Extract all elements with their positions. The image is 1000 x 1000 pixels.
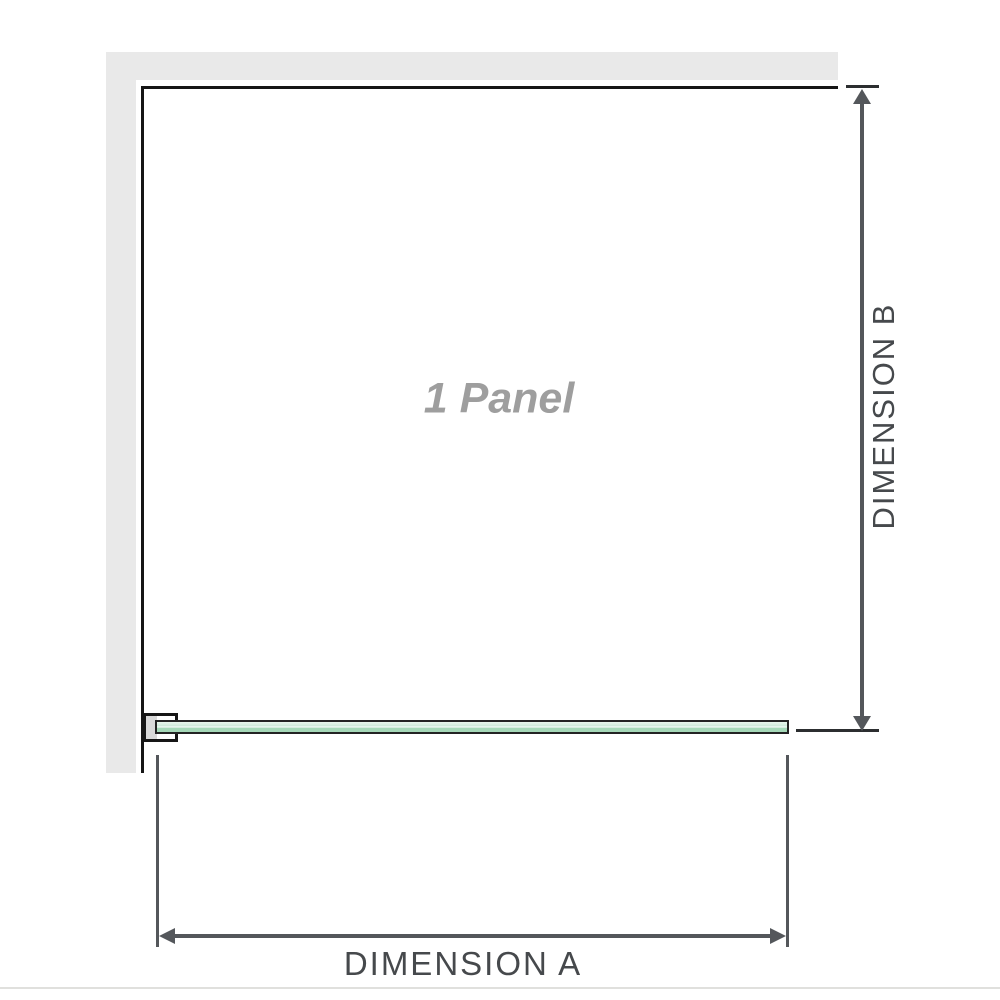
glass-panel [155,720,789,734]
wall-edge-left-line [141,86,144,773]
dimension-a-extension-right [786,755,789,947]
panel-count-label: 1 Panel [424,375,575,424]
wall-top [106,52,838,80]
panel-diagram: 1 Panel DIMENSION B DIMENSION A [0,0,1000,1000]
page-divider [0,987,1000,989]
dimension-b-label: DIMENSION B [866,303,902,530]
dimension-b-line [860,98,864,720]
dimension-a-arrow-right-icon [770,928,786,944]
wall-left [106,52,136,773]
dimension-a-arrow-left-icon [159,928,175,944]
dimension-b-tick-top [846,85,879,88]
dimension-a-extension-left [156,755,159,947]
dimension-b-arrow-down-icon [853,716,871,731]
dimension-a-line [173,934,772,938]
dimension-a-label: DIMENSION A [344,945,582,983]
wall-edge-top-line [141,86,838,89]
dimension-b-arrow-up-icon [853,89,871,104]
